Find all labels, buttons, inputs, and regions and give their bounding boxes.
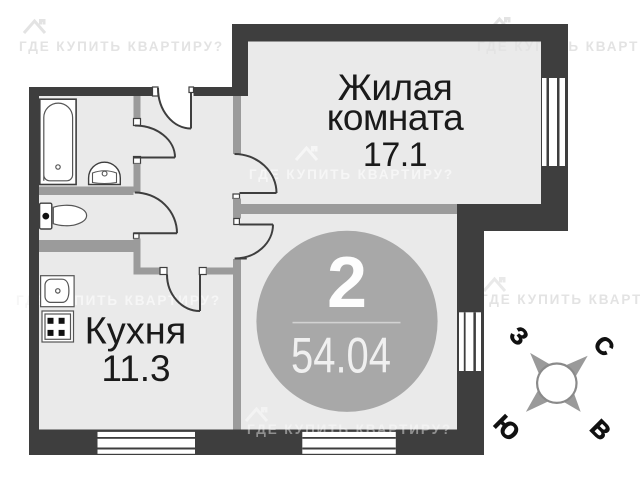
svg-text:ГДЕ КУПИТЬ КВАРТИРУ?: ГДЕ КУПИТЬ КВАРТИРУ?	[19, 39, 224, 54]
svg-text:комната: комната	[327, 97, 464, 138]
svg-text:54.04: 54.04	[291, 328, 391, 384]
svg-text:ГДЕ КУПИТЬ КВАРТИРУ?: ГДЕ КУПИТЬ КВАРТИРУ?	[480, 292, 640, 307]
svg-text:ГДЕ КУПИТЬ КВАРТИРУ?: ГДЕ КУПИТЬ КВАРТИРУ?	[247, 422, 452, 437]
svg-text:11.3: 11.3	[101, 348, 170, 389]
svg-text:Кухня: Кухня	[85, 311, 187, 353]
svg-text:2: 2	[327, 243, 367, 323]
svg-text:17.1: 17.1	[363, 136, 427, 174]
